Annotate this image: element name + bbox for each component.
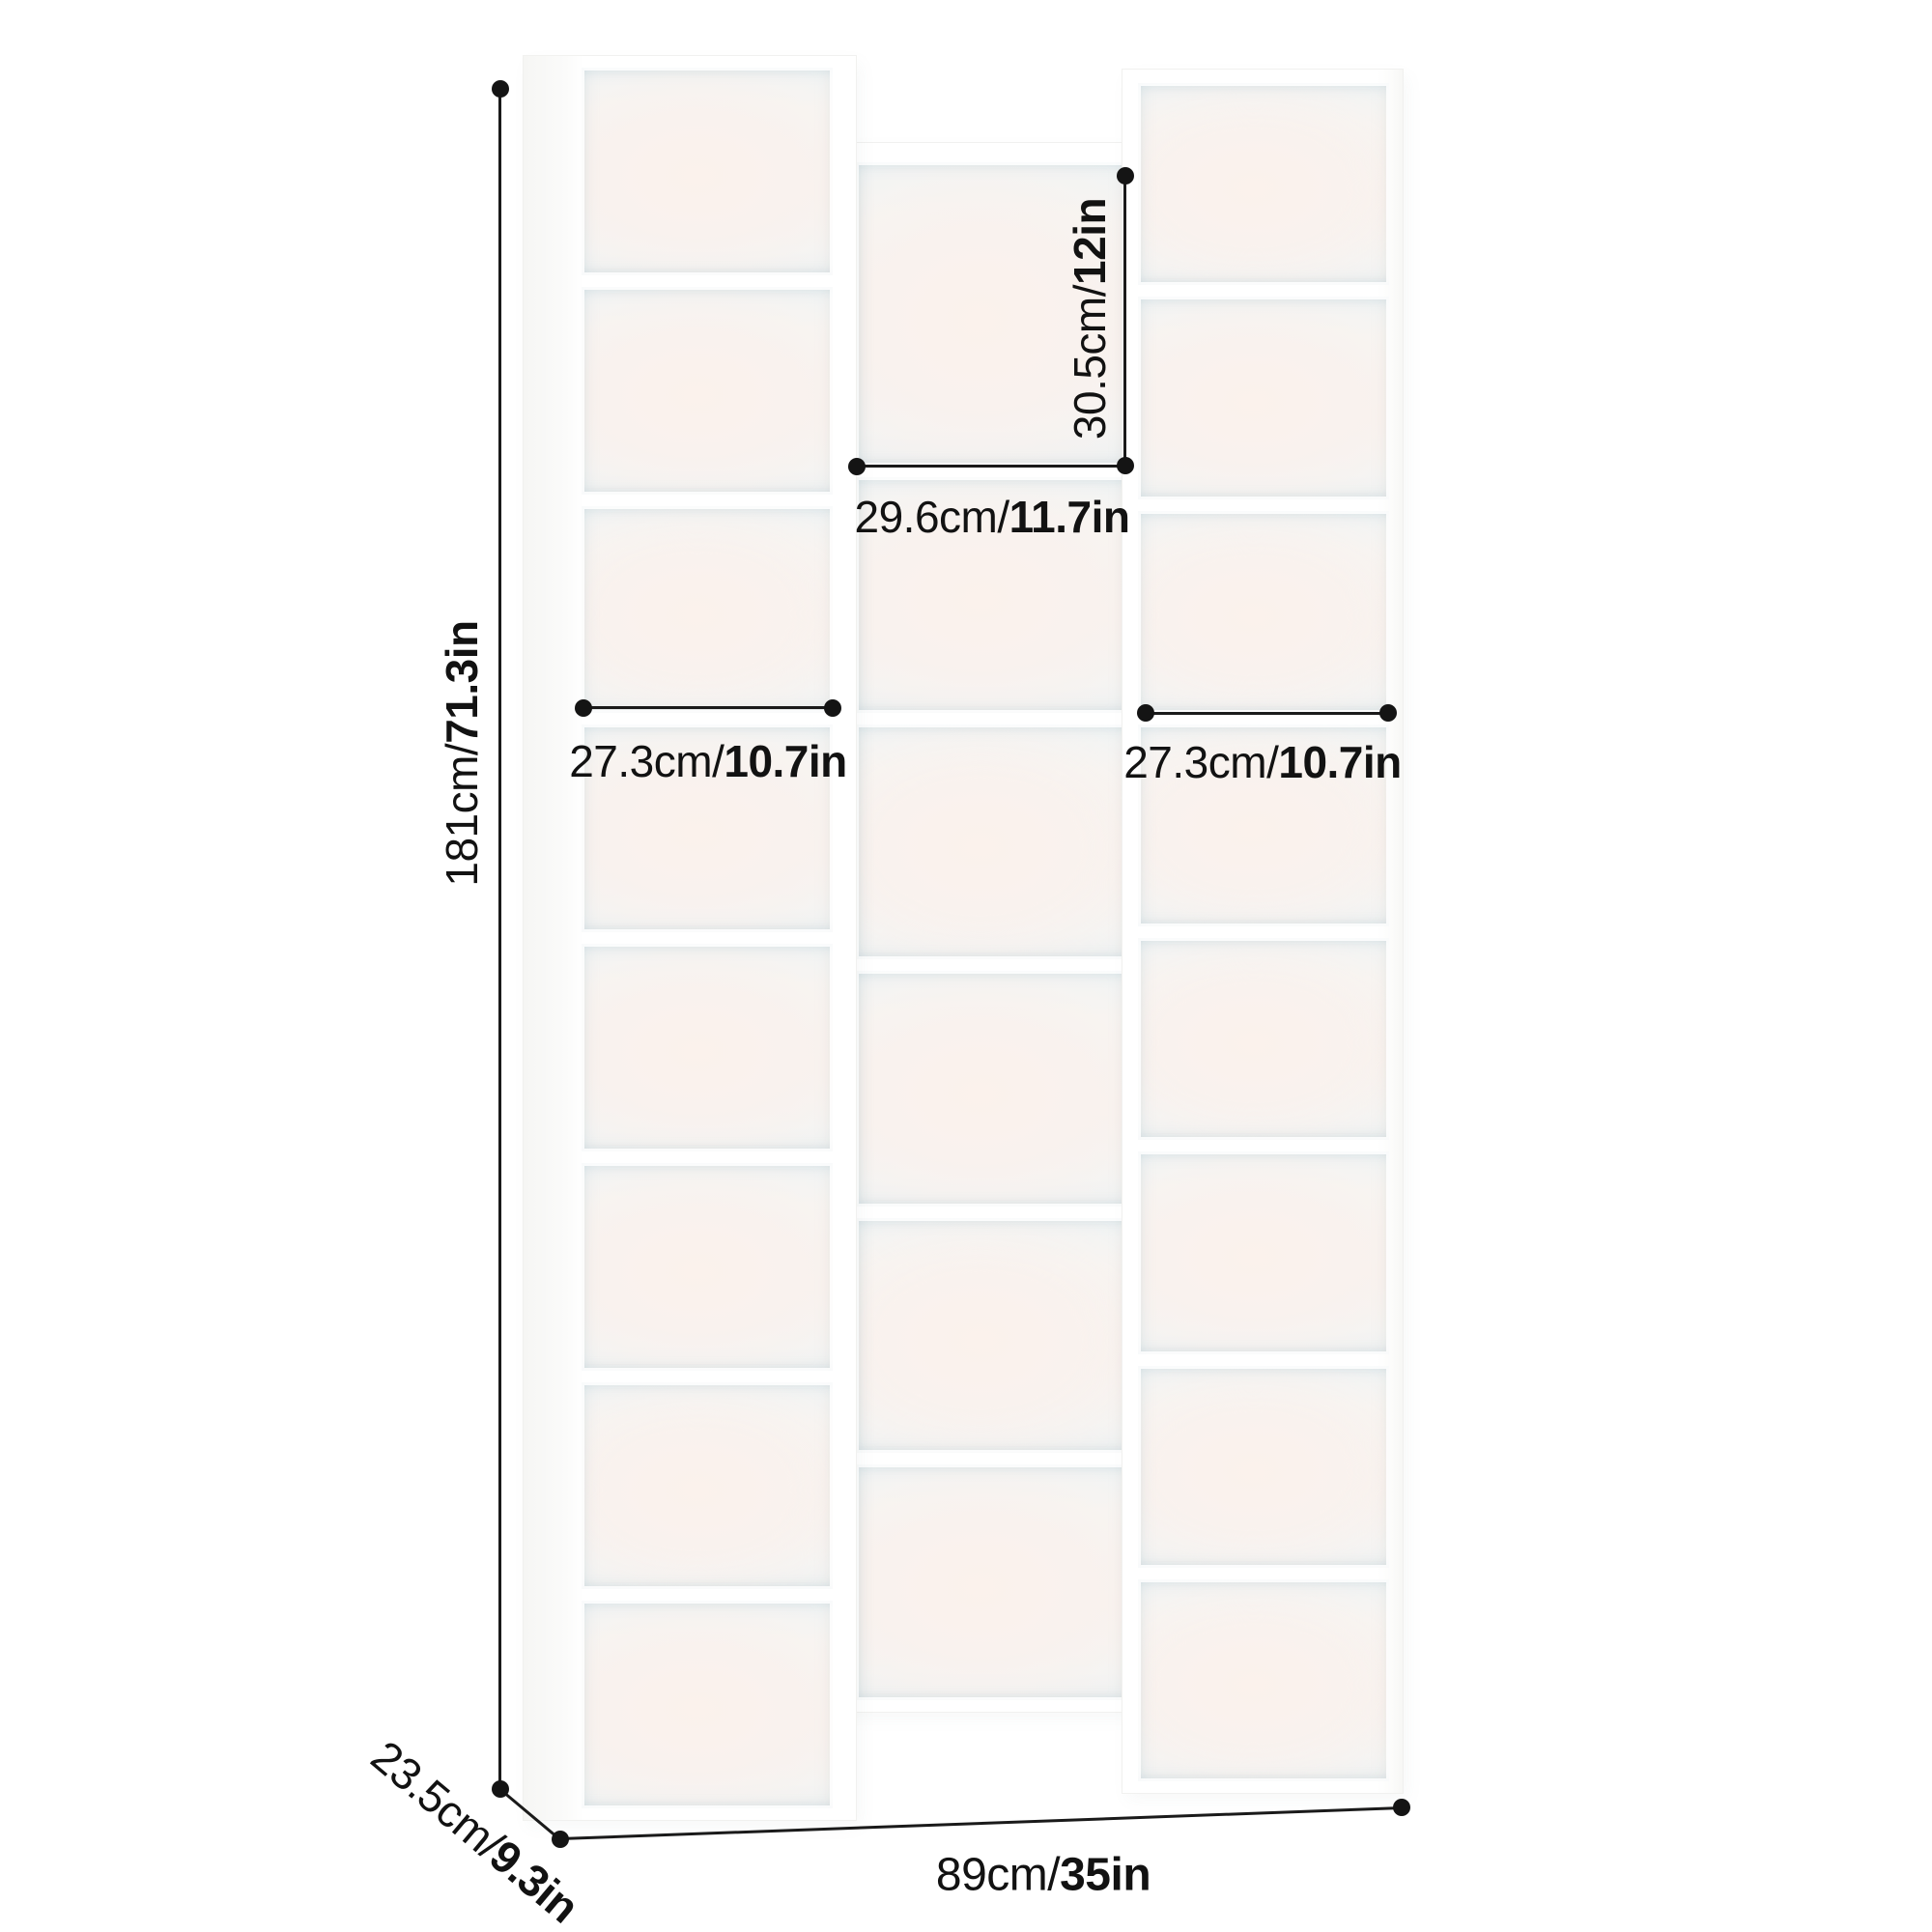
dimension-dot <box>1137 704 1154 722</box>
middle-cubby-height-label-in: 12in <box>1065 198 1115 285</box>
cubby <box>582 1382 833 1590</box>
right-column-width-label-cm: 27.3cm/ <box>1123 737 1278 787</box>
cubby <box>1138 938 1389 1140</box>
right-column-width-label-in: 10.7in <box>1278 737 1401 787</box>
cubby <box>1138 1366 1389 1568</box>
dimension-dot <box>492 80 509 98</box>
cubby <box>582 1163 833 1371</box>
middle-cubby-height-label-cm: 30.5cm/ <box>1065 285 1115 440</box>
dimension-dot <box>1117 457 1134 474</box>
product-dimension-diagram: 181cm/71.3in 23.5cm/9.3in 89cm/35in 30.5… <box>0 0 1932 1932</box>
cubby <box>1138 1579 1389 1781</box>
cubby <box>856 1464 1126 1700</box>
height-label-in: 71.3in <box>437 620 487 743</box>
dimension-dot <box>824 699 841 717</box>
right-column <box>1122 70 1403 1793</box>
cubby <box>1138 511 1389 713</box>
cubby <box>856 971 1126 1207</box>
width-label-in: 35in <box>1060 1850 1151 1901</box>
cubby <box>856 724 1126 960</box>
height-dimension-line <box>498 89 501 1789</box>
middle-column-width-label-cm: 29.6cm/ <box>854 492 1009 542</box>
right-column-width-line <box>1146 712 1388 715</box>
dimension-dot <box>1393 1799 1410 1816</box>
left-column-width-label-cm: 27.3cm/ <box>569 736 724 786</box>
cubby <box>1138 83 1389 285</box>
cubby <box>582 506 833 714</box>
dimension-dot <box>1117 167 1134 185</box>
left-column-width-label: 27.3cm/10.7in <box>569 735 847 787</box>
height-label-cm: 181cm/ <box>437 744 487 887</box>
middle-column-width-line <box>857 465 1125 468</box>
cubby <box>1138 1151 1389 1353</box>
right-column-width-label: 27.3cm/10.7in <box>1123 736 1402 788</box>
middle-cubby-height-line <box>1123 176 1126 466</box>
width-label: 89cm/35in <box>936 1849 1151 1902</box>
middle-cubby-height-label: 30.5cm/12in <box>1064 198 1116 440</box>
dimension-dot <box>552 1831 569 1848</box>
height-label: 181cm/71.3in <box>436 620 488 886</box>
dimension-dot <box>848 458 866 475</box>
cubby <box>582 287 833 495</box>
cubby <box>582 1601 833 1808</box>
cubby <box>856 1218 1126 1454</box>
cubby <box>1138 297 1389 498</box>
depth-label-cm: 23.5cm/ <box>362 1731 513 1869</box>
left-column-width-line <box>583 706 833 709</box>
cubby <box>582 944 833 1151</box>
middle-column-width-label: 29.6cm/11.7in <box>854 491 1129 543</box>
left-column <box>524 56 856 1820</box>
cubby <box>582 68 833 275</box>
dimension-dot <box>492 1780 509 1798</box>
dimension-dot <box>575 699 592 717</box>
left-column-width-label-in: 10.7in <box>724 736 846 786</box>
middle-column-width-label-in: 11.7in <box>1009 492 1130 542</box>
dimension-dot <box>1379 704 1397 722</box>
width-label-cm: 89cm/ <box>936 1850 1060 1901</box>
